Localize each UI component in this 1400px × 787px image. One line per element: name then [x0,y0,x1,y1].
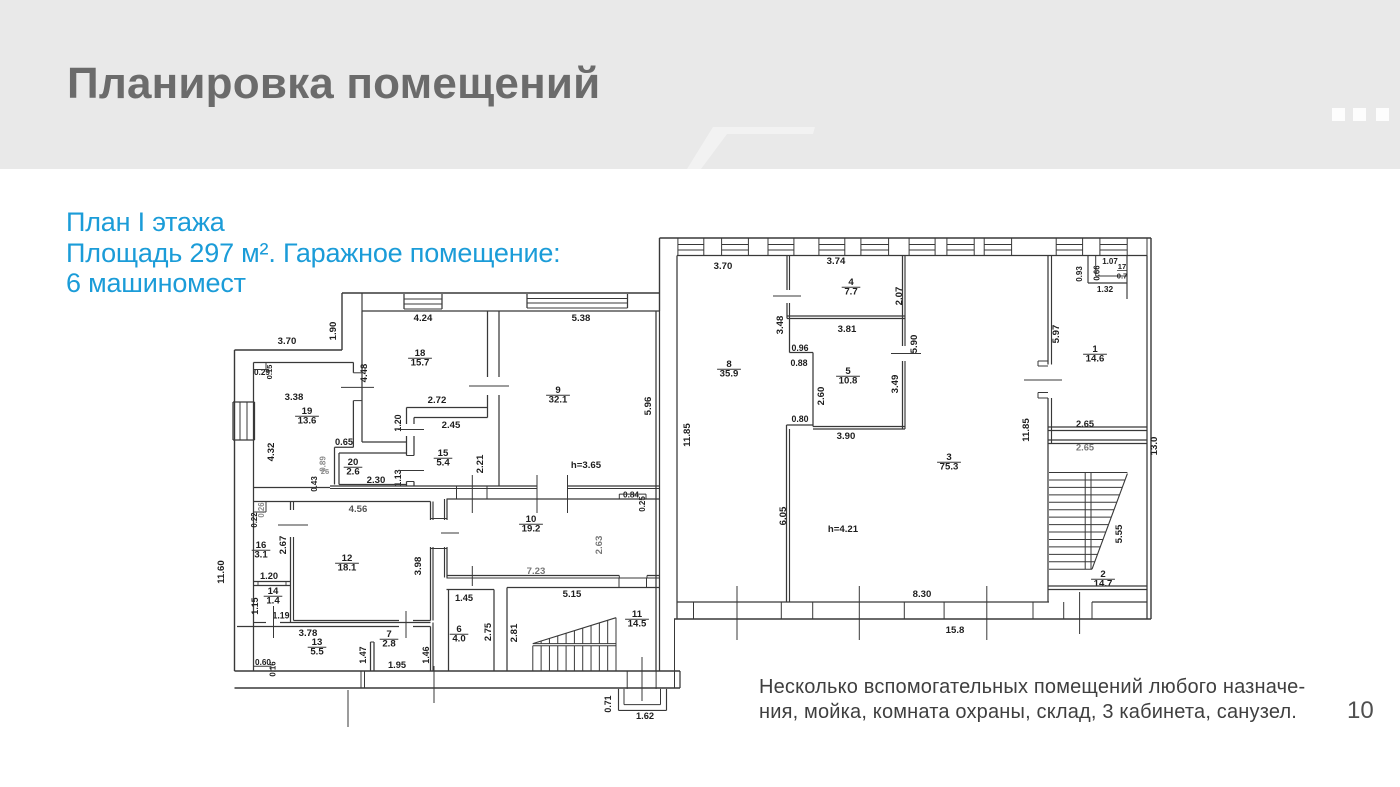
svg-text:2.65: 2.65 [1076,443,1094,453]
svg-text:11.85: 11.85 [1021,418,1032,442]
svg-text:1.47: 1.47 [358,646,368,663]
svg-text:3.78: 3.78 [299,628,318,639]
svg-text:1.15: 1.15 [250,597,260,614]
svg-text:14.5: 14.5 [628,619,647,630]
svg-text:15.8: 15.8 [946,625,965,636]
svg-text:1.95: 1.95 [388,660,406,670]
svg-text:2.6: 2.6 [346,467,359,478]
svg-text:h=4.21: h=4.21 [828,524,859,535]
svg-text:3.70: 3.70 [714,261,733,272]
svg-text:3.81: 3.81 [838,324,857,335]
svg-text:0.7: 0.7 [1117,272,1128,281]
svg-text:1.45: 1.45 [455,593,473,603]
svg-text:5.97: 5.97 [1051,325,1062,344]
svg-text:2.8: 2.8 [382,639,396,650]
svg-text:14.6: 14.6 [1086,354,1105,365]
svg-text:10.8: 10.8 [839,376,858,387]
svg-text:7.7: 7.7 [844,287,857,298]
svg-text:0.71: 0.71 [603,695,613,712]
svg-text:2.72: 2.72 [428,395,447,406]
svg-text:6.05: 6.05 [778,506,789,525]
svg-text:2.75: 2.75 [483,623,493,641]
svg-text:3.74: 3.74 [827,256,846,267]
svg-text:4.48: 4.48 [359,363,370,382]
svg-text:1.32: 1.32 [1097,284,1114,294]
svg-text:14.7: 14.7 [1094,579,1113,590]
svg-text:2.67: 2.67 [278,536,289,555]
svg-text:3.98: 3.98 [413,556,424,575]
svg-text:1.46: 1.46 [421,646,431,663]
svg-text:4.24: 4.24 [414,313,433,324]
svg-text:18.1: 18.1 [338,563,357,574]
svg-text:0.84: 0.84 [623,491,639,500]
svg-text:13.6: 13.6 [298,416,317,427]
svg-text:1.20: 1.20 [393,414,403,431]
svg-text:75.3: 75.3 [940,462,959,473]
svg-text:2.81: 2.81 [509,623,520,642]
svg-text:17: 17 [1118,262,1126,271]
svg-text:19.2: 19.2 [522,524,541,535]
svg-text:2.60: 2.60 [816,387,827,406]
svg-text:0.88: 0.88 [790,358,807,368]
svg-text:3.1: 3.1 [254,550,268,561]
svg-text:8.30: 8.30 [913,589,932,600]
svg-text:0.93: 0.93 [1075,266,1084,282]
svg-text:1.4: 1.4 [266,596,280,607]
svg-text:2.07: 2.07 [894,287,905,306]
svg-text:1.20: 1.20 [260,571,278,581]
svg-text:0.43: 0.43 [310,476,319,492]
svg-text:0.96: 0.96 [791,343,808,353]
svg-text:3.90: 3.90 [837,431,856,442]
svg-text:0.16: 0.16 [269,661,278,677]
svg-text:0.65: 0.65 [335,437,353,447]
svg-text:15.7: 15.7 [411,358,430,369]
svg-text:3.38: 3.38 [285,392,304,403]
svg-text:1.90: 1.90 [328,322,339,341]
svg-text:11.85: 11.85 [682,423,693,447]
svg-text:0.66: 0.66 [1093,265,1102,281]
svg-text:11.60: 11.60 [216,560,227,583]
svg-text:3.49: 3.49 [890,375,901,394]
svg-text:0.26: 0.26 [257,502,266,518]
svg-text:5.4: 5.4 [436,458,450,469]
svg-text:13.0: 13.0 [1149,437,1160,456]
svg-text:1.07: 1.07 [1102,257,1118,266]
svg-text:5.55: 5.55 [1114,524,1125,543]
svg-text:3.48: 3.48 [775,315,786,334]
svg-text:5.5: 5.5 [310,647,324,658]
svg-text:2.45: 2.45 [442,420,461,431]
svg-text:2.21: 2.21 [475,454,486,473]
svg-text:32.1: 32.1 [549,395,568,406]
svg-text:4.56: 4.56 [349,504,368,515]
svg-text:5.90: 5.90 [909,335,920,354]
svg-text:4.32: 4.32 [266,443,277,462]
svg-text:5.15: 5.15 [563,589,582,600]
svg-text:0.80: 0.80 [791,414,808,424]
svg-text:h=3.65: h=3.65 [571,460,602,471]
svg-text:3.70: 3.70 [278,336,297,347]
svg-text:5.38: 5.38 [572,313,591,324]
svg-text:1.62: 1.62 [636,711,654,721]
svg-text:2.63: 2.63 [594,536,605,555]
svg-text:26: 26 [321,467,329,476]
svg-text:1.19: 1.19 [272,611,289,621]
svg-text:4.0: 4.0 [452,634,465,645]
svg-text:35.9: 35.9 [720,369,739,380]
svg-text:5.96: 5.96 [643,397,654,416]
